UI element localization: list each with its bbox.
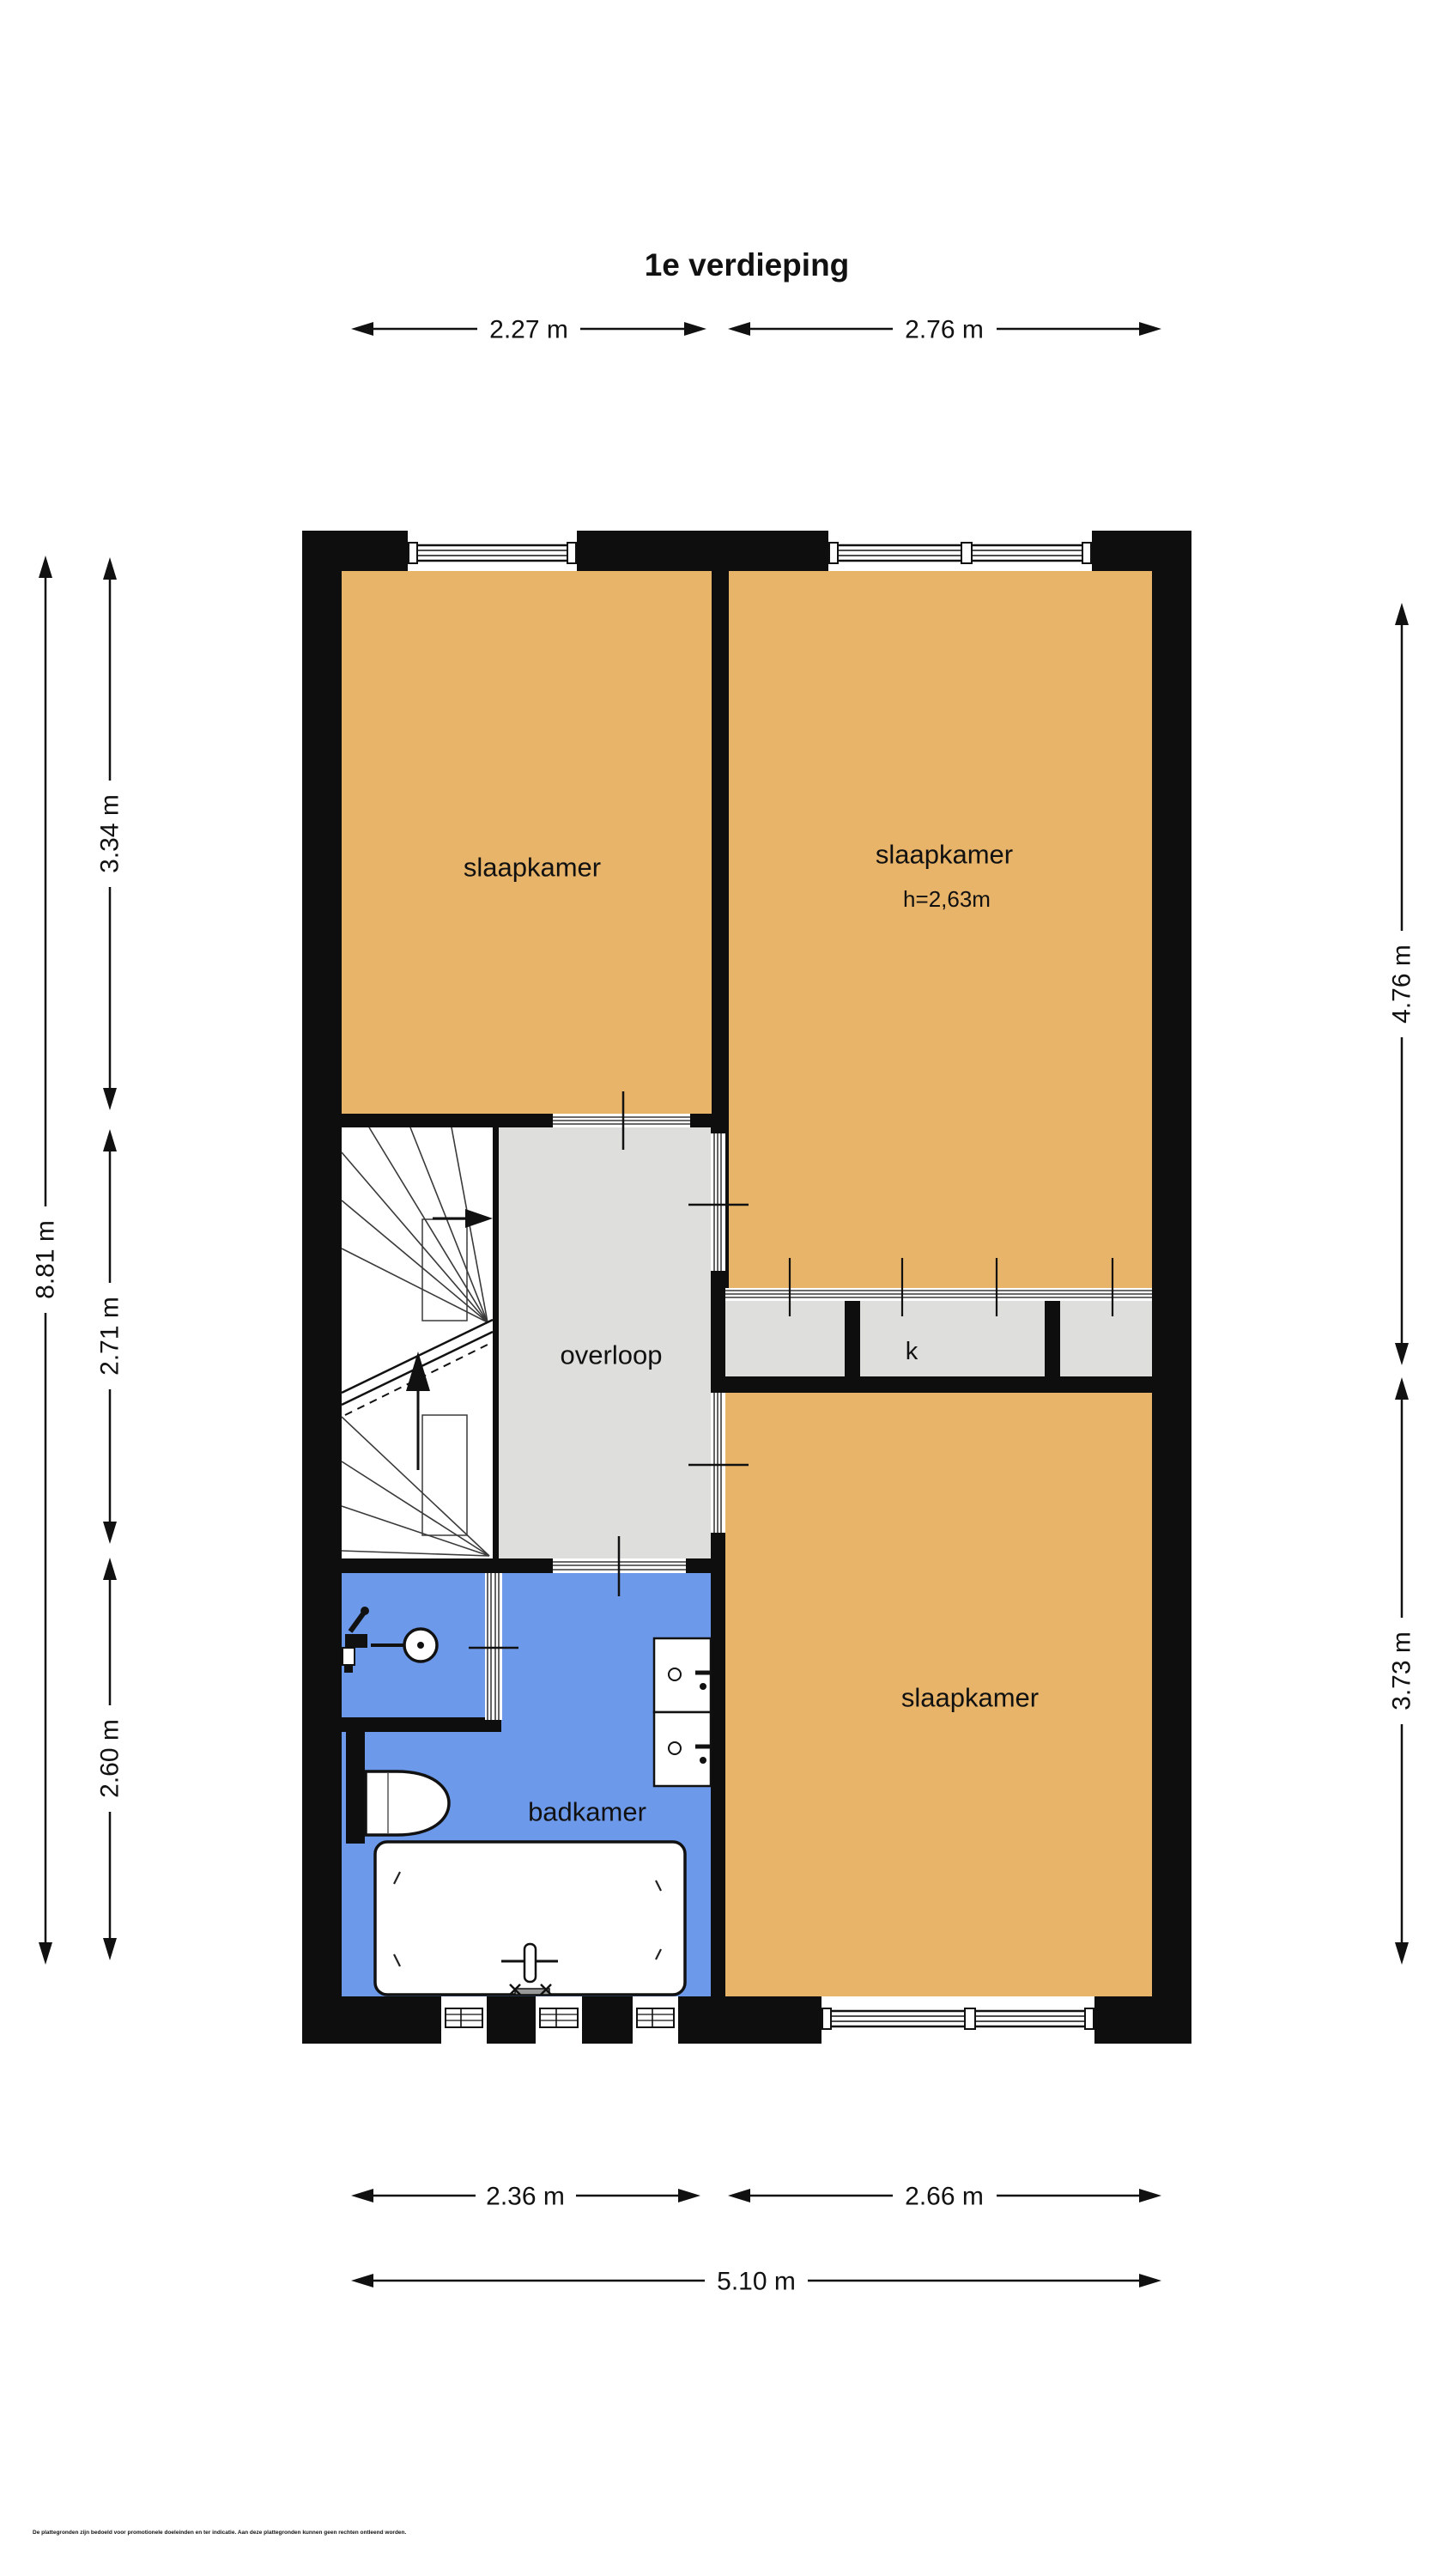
dim-bottom-total: 5.10 m — [349, 2263, 1163, 2298]
page-title: 1e verdieping — [283, 247, 1210, 283]
window-top-right-icon — [828, 531, 1092, 571]
dim-bottom-left: 2.36 m — [349, 2178, 702, 2213]
room-bedroom-top-left — [342, 571, 712, 1114]
window-bathroom-small-icon — [441, 1996, 487, 2044]
dim-label: 2.36 m — [486, 2183, 565, 2211]
dim-label: 2.60 m — [96, 1719, 124, 1798]
dim-label: 3.73 m — [1388, 1631, 1416, 1710]
dim-label: 2.66 m — [905, 2183, 984, 2211]
washbasin-icon — [654, 1638, 711, 1712]
dim-label: 8.81 m — [32, 1220, 60, 1299]
dim-left-total: 8.81 m — [17, 554, 74, 1966]
dim-left-2: 2.71 m — [82, 1127, 138, 1546]
label-bathroom: badkamer — [528, 1797, 646, 1827]
label-landing: overloop — [561, 1340, 663, 1370]
bathtub-icon — [375, 1842, 685, 1995]
floorplan-drawing: slaapkamer slaapkamer h=2,63m overloop k… — [283, 507, 1210, 2061]
room-bedroom-top-right — [729, 571, 1152, 1288]
label-bedroom-top-right: slaapkamer — [876, 840, 1013, 870]
dim-right-1: 4.76 m — [1373, 601, 1430, 1367]
dim-left-1: 3.34 m — [82, 556, 138, 1112]
dim-top-left: 2.27 m — [349, 312, 708, 346]
disclaimer-text: De plattegronden zijn bedoeld voor promo… — [33, 2530, 805, 2536]
label-bedroom-bottom-right: slaapkamer — [901, 1683, 1039, 1713]
dim-label: 2.71 m — [96, 1297, 124, 1376]
dim-label: 2.27 m — [489, 316, 568, 344]
closet-partition — [1045, 1301, 1060, 1376]
dim-right-2: 3.73 m — [1373, 1376, 1430, 1966]
toilet-wall-stub — [346, 1732, 365, 1844]
label-bedroom-top-left: slaapkamer — [464, 853, 601, 883]
label-ceiling-height: h=2,63m — [903, 886, 991, 912]
dim-left-3: 2.60 m — [82, 1556, 138, 1962]
dim-label: 2.76 m — [905, 316, 984, 344]
floorplan-page: 1e verdieping — [0, 0, 1449, 2576]
label-closet: k — [906, 1338, 919, 1365]
window-bottom-bedroom-icon — [822, 1996, 1094, 2044]
window-bathroom-small-icon — [536, 1996, 582, 2044]
toilet-icon — [366, 1771, 449, 1835]
dim-label: 5.10 m — [717, 2268, 796, 2296]
washbasin-icon — [654, 1712, 711, 1786]
dim-top-right: 2.76 m — [726, 312, 1163, 346]
dim-label: 4.76 m — [1388, 945, 1416, 1024]
dim-bottom-right: 2.66 m — [726, 2178, 1163, 2213]
shower-wall — [342, 1717, 501, 1732]
window-bathroom-small-icon — [633, 1996, 678, 2044]
window-top-left-icon — [408, 531, 577, 571]
closet-partition — [845, 1301, 860, 1376]
dim-label: 3.34 m — [96, 794, 124, 873]
